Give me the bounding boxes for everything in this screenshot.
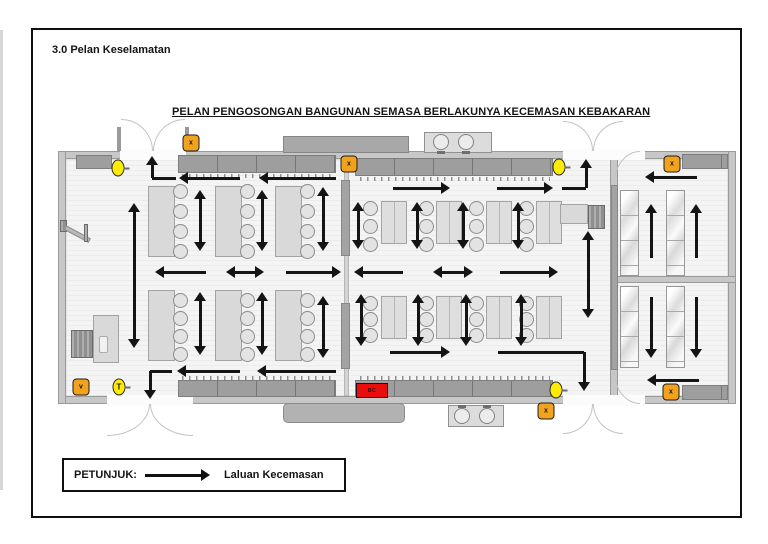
route-arrow-head [256,242,268,251]
route-arrow-head [441,182,450,194]
route-arrow-head [645,171,654,183]
route-arrow-head [549,266,558,278]
chair [363,312,378,327]
lamp-marker [553,159,566,176]
route-arrow-head [257,365,266,377]
sink-tap [458,405,466,408]
chair [469,312,484,327]
route-arrow [322,195,325,243]
chair [173,311,188,326]
route-arrow-head [457,202,469,211]
door-swing-arc [593,404,623,434]
chair [173,293,188,308]
route-arrow [151,164,154,178]
chair [469,219,484,234]
route-arrow [150,370,172,373]
route-arrow [562,187,586,190]
cabinet [283,403,405,423]
route-arrow-head [441,346,450,358]
route-arrow [653,176,697,179]
shelf-rack [620,190,639,276]
door-post [117,127,121,151]
route-arrow [695,297,698,350]
chair [240,244,255,259]
cabinet-hooks [360,376,550,380]
chair [588,205,605,229]
cabinet-hooks [182,376,332,380]
wall-segment [611,185,618,370]
table [148,186,175,257]
exit-sign-marker: x [183,135,200,152]
chair [300,347,315,362]
table [275,186,302,257]
chair [300,329,315,344]
route-arrow-head [355,294,367,303]
cabinet [178,380,336,397]
route-arrow-head [464,266,473,278]
route-arrow [360,302,363,338]
route-arrow-head [412,294,424,303]
chair [173,184,188,199]
double-desk [486,201,512,244]
chair [469,237,484,252]
double-desk [536,201,562,244]
chair [419,312,434,327]
exit-sign-marker: v [73,379,90,396]
route-arrow-head [515,294,527,303]
route-arrow [390,351,442,354]
chair [240,204,255,219]
route-arrow-head [256,190,268,199]
route-arrow [585,167,588,188]
route-arrow [362,271,403,274]
route-arrow-head [433,266,442,278]
door-swing-arc [121,119,153,151]
chair [519,219,534,234]
route-arrow [133,211,136,340]
route-arrow-head [317,296,329,305]
double-desk [381,201,407,244]
chair [300,184,315,199]
route-arrow-head [582,231,594,240]
table [215,186,242,257]
route-arrow-head [194,242,206,251]
chair [363,219,378,234]
chair [173,204,188,219]
cabinet-hooks [360,177,550,181]
door-swing-arc [150,404,193,436]
route-arrow [655,379,699,382]
route-arrow [441,271,465,274]
route-arrow-head [512,202,524,211]
chair [300,204,315,219]
sink-tap [437,151,445,154]
route-arrow-head [690,204,702,213]
chair [173,329,188,344]
chair [469,201,484,216]
desk-item [99,336,108,353]
chair [240,311,255,326]
chair [173,244,188,259]
chair [419,219,434,234]
route-arrow [265,370,336,373]
table [148,290,175,361]
shelf-rack [666,286,685,368]
wall-segment [341,303,350,369]
route-arrow [185,370,240,373]
route-arrow-head [194,292,206,301]
chair [71,330,93,358]
route-arrow-head [411,202,423,211]
door-swing-arc [107,404,150,436]
legend-label: PETUNJUK: [74,469,137,481]
route-arrow [322,304,325,350]
lamp-marker [550,382,563,399]
cabinet [178,155,336,173]
route-arrow-head [226,266,235,278]
sink-basin [433,134,449,150]
route-arrow [498,351,584,354]
route-arrow [286,271,333,274]
route-arrow-head [317,187,329,196]
route-arrow [500,271,550,274]
route-arrow [199,300,202,347]
route-arrow-head [332,266,341,278]
route-arrow-head [146,156,158,165]
chair [363,237,378,252]
exit-sign-marker: x [538,403,555,420]
route-arrow-head [256,292,268,301]
legend-arrowhead-icon [201,469,216,481]
route-arrow [587,239,590,310]
sink-tap [483,405,491,408]
route-arrow [520,302,523,338]
route-arrow [583,352,586,383]
double-desk [536,296,562,339]
route-arrow-head [317,349,329,358]
route-arrow-head [256,346,268,355]
route-arrow-head [352,202,364,211]
route-arrow-head [582,309,594,318]
shelf-rack [666,190,685,276]
door-swing-arc [153,119,185,151]
route-arrow-head [259,172,268,184]
route-arrow [267,177,336,180]
route-arrow-head [515,337,527,346]
route-arrow-head [512,240,524,249]
route-arrow-head [177,365,186,377]
double-desk [436,296,462,339]
cabinet [76,155,112,169]
route-arrow-head [128,339,140,348]
route-arrow [650,297,653,350]
sink-basin [454,408,470,424]
lamp-marker: T [113,379,126,396]
legend-box: PETUNJUK: Laluan Kecemasan [62,458,346,492]
sink-tap [462,151,470,154]
route-arrow [416,210,419,241]
table [275,290,302,361]
route-arrow-head [128,203,140,212]
route-arrow [393,187,442,190]
route-arrow [650,212,653,258]
chair [240,293,255,308]
route-arrow [187,177,240,180]
legend-meaning: Laluan Kecemasan [224,469,324,481]
cabinet [682,385,728,400]
chair [240,329,255,344]
route-arrow [465,302,468,338]
sink-basin [458,134,474,150]
door-swing-arc [563,121,593,151]
route-arrow-head [355,337,367,346]
cabinet [283,136,409,153]
route-arrow-head [317,242,329,251]
exit-sign-marker: x [664,156,681,173]
route-arrow-head [194,346,206,355]
route-arrow-head [352,240,364,249]
double-desk [381,296,407,339]
chair [173,224,188,239]
route-arrow-head [544,182,553,194]
route-arrow-head [255,266,264,278]
route-arrow [261,198,264,243]
sink-basin [479,408,495,424]
exit-sign-marker: x [341,156,358,173]
exit-sign-marker: x [663,384,680,401]
route-arrow [234,271,256,274]
wall [58,151,66,404]
route-arrow [152,177,176,180]
route-arrow-head [457,240,469,249]
route-arrow-head [354,266,363,278]
chair [240,347,255,362]
shelf-rack [620,286,639,368]
route-arrow [417,302,420,338]
route-arrow-head [144,390,156,399]
chair [173,347,188,362]
route-arrow [497,187,545,190]
route-arrow-head [645,204,657,213]
route-arrow [199,198,202,243]
chair [363,201,378,216]
chair [240,224,255,239]
double-desk [486,296,512,339]
chair [240,184,255,199]
route-arrow [261,300,264,347]
route-arrow-head [194,190,206,199]
door-swing-arc [563,404,593,434]
route-arrow [695,212,698,258]
wall-segment [341,180,350,256]
legend-arrow-icon [145,474,201,477]
chair [84,224,88,242]
route-arrow [462,210,465,241]
route-arrow [163,271,206,274]
table [215,290,242,361]
route-arrow-head [411,240,423,249]
route-arrow-head [460,337,472,346]
fire-alarm-panel: BC [356,383,388,398]
route-arrow-head [647,374,656,386]
chair [300,311,315,326]
route-arrow-head [179,172,188,184]
chair [300,224,315,239]
door-swing-arc [593,121,623,151]
route-arrow [517,210,520,241]
route-arrow-head [580,159,592,168]
cabinet [682,154,728,169]
route-arrow-head [155,266,164,278]
route-arrow-head [578,382,590,391]
route-arrow-head [412,337,424,346]
route-arrow-head [690,349,702,358]
chair [300,244,315,259]
route-arrow [357,210,360,241]
chair [300,293,315,308]
wall [612,276,736,283]
route-arrow [149,371,152,391]
cabinet [355,158,553,176]
route-arrow-head [645,349,657,358]
document-page: { "page": { "section_heading": "3.0 Pela… [0,0,768,544]
route-arrow-head [460,294,472,303]
lamp-marker [112,160,125,177]
table [560,204,588,224]
